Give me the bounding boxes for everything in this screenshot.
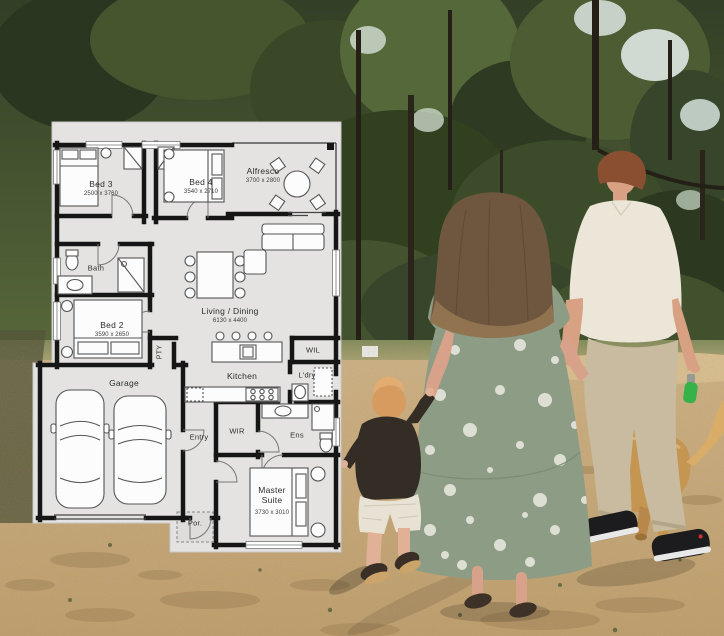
bed4-bed <box>164 149 224 202</box>
dining-table <box>185 252 245 298</box>
bed2-bed <box>62 300 143 358</box>
screenshot: Bed 3 2500 x 3760 Bed 4 3540 x 2710 Alfr… <box>0 0 724 636</box>
toddler-head <box>372 385 406 419</box>
floorplan <box>33 122 341 552</box>
alfresco-post <box>327 143 334 150</box>
toddler-jacket <box>355 417 421 501</box>
scene-svg <box>0 0 724 636</box>
man-shirt <box>570 200 682 342</box>
kitchen-bench <box>185 387 280 402</box>
